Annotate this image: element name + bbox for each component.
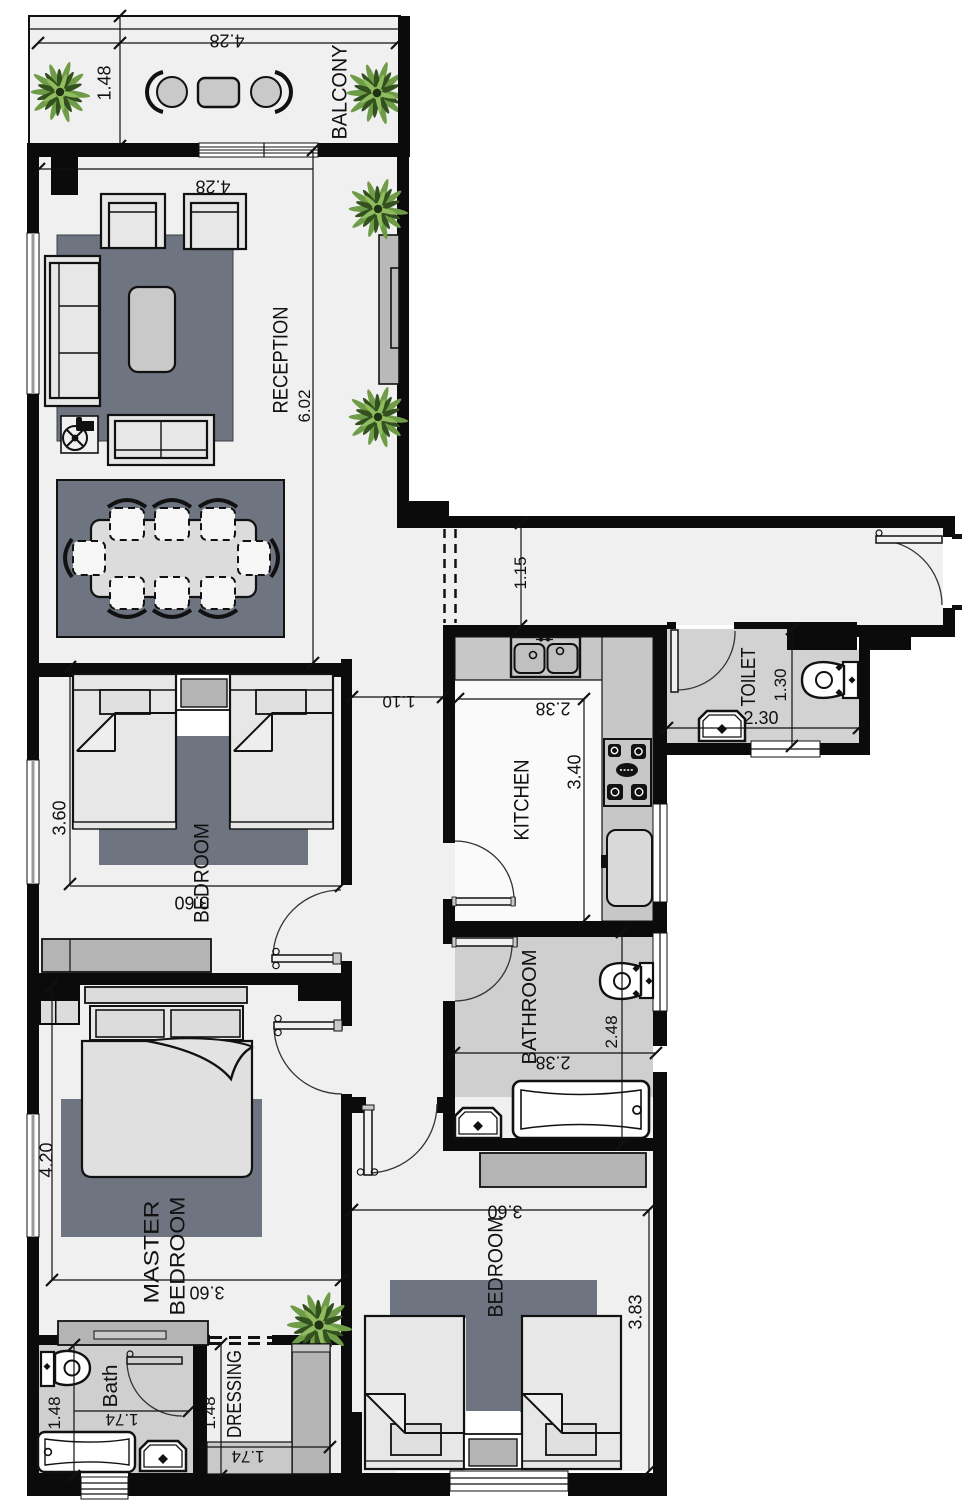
svg-text:KITCHEN: KITCHEN [510,760,533,841]
svg-text:4.20: 4.20 [36,1143,56,1178]
svg-text:4.28: 4.28 [196,177,231,197]
svg-text:Bath: Bath [100,1365,122,1408]
svg-text:3.60: 3.60 [49,801,69,836]
svg-text:MASTER: MASTER [140,1201,163,1304]
svg-text:BATHROOM: BATHROOM [519,950,541,1065]
svg-text:2.38: 2.38 [536,1053,571,1073]
svg-text:3.40: 3.40 [564,755,584,790]
svg-text:6.02: 6.02 [295,390,314,423]
svg-text:BEDROOM: BEDROOM [484,1217,507,1318]
svg-text:1.30: 1.30 [771,669,790,702]
svg-text:1.48: 1.48 [94,66,114,101]
svg-text:TOILET: TOILET [738,648,760,707]
svg-text:3.60: 3.60 [488,1202,523,1222]
svg-text:BEDROOM: BEDROOM [166,1197,189,1316]
svg-text:3.60: 3.60 [175,893,210,913]
svg-text:2.30: 2.30 [744,708,779,728]
svg-text:1.74: 1.74 [106,1410,139,1429]
svg-text:BALCONY: BALCONY [328,45,351,140]
svg-text:1.74: 1.74 [232,1447,265,1466]
svg-text:1.48: 1.48 [45,1397,64,1430]
svg-text:2.48: 2.48 [602,1016,621,1049]
svg-text:3.83: 3.83 [625,1295,645,1330]
svg-text:1.10: 1.10 [383,692,416,711]
svg-text:RECEPTION: RECEPTION [269,307,292,414]
svg-text:1.48: 1.48 [200,1397,219,1430]
svg-text:1.15: 1.15 [511,557,530,590]
svg-text:2.38: 2.38 [536,699,571,719]
svg-text:4.28: 4.28 [210,31,245,51]
svg-text:DRESSING: DRESSING [224,1350,246,1438]
svg-text:3.60: 3.60 [190,1283,225,1303]
